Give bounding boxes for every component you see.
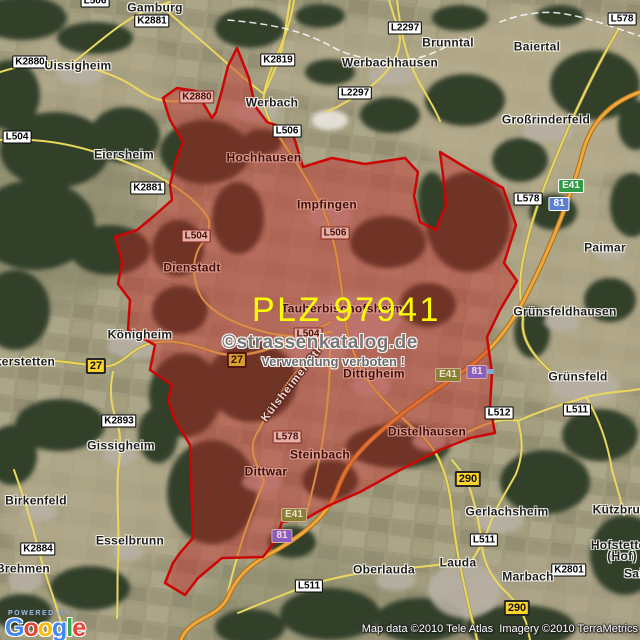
map-label-werbachhausen: Werbachhausen [342, 58, 438, 69]
map-label-e41-south: E41 [281, 508, 307, 522]
map-label-eiersheim: Eiersheim [94, 150, 154, 161]
map-label-oberlauda: Oberlauda [353, 565, 415, 576]
map-label-l2297-north: L2297 [388, 22, 422, 35]
map-label-weikerstetten: Weikerstetten [0, 357, 55, 368]
map-label-hofstetten: Hofstetten (Hof) [591, 540, 640, 562]
map-label-k2880-west: K2880 [12, 56, 47, 69]
map-label-k2880-border: K2880 [179, 91, 214, 104]
map-label-l511-oberlauda: L511 [295, 580, 323, 593]
map-label-dittigheim: Dittigheim [343, 369, 405, 380]
map-label-a81-mid: 81 [466, 365, 487, 379]
map-label-werbach: Werbach [246, 98, 299, 109]
map-label-a81-south: 81 [271, 529, 292, 543]
map-label-gissigheim: Gissigheim [87, 441, 155, 452]
google-letter: G [5, 614, 23, 640]
google-letter: o [38, 614, 52, 640]
map-label-l506-impfingen: L506 [321, 227, 350, 240]
map-label-hochhausen: Hochhausen [226, 153, 301, 164]
google-logo[interactable]: POWERED BY Google [5, 610, 85, 639]
map-label-birkenfeld: Birkenfeld [5, 496, 67, 507]
map-label-l506-werbach: L506 [273, 125, 302, 138]
google-letter: o [23, 614, 37, 640]
map-label-k2884: K2884 [20, 543, 55, 556]
map-label-k2893: K2893 [101, 415, 136, 428]
map-label-l504-west: L504 [3, 131, 32, 144]
map-label-l511-gerlachsheim: L511 [470, 534, 498, 547]
map-label-paimar: Paimar [584, 243, 626, 254]
map-label-esselbrunn: Esselbrunn [96, 536, 164, 547]
map-label-steinbach: Steinbach [290, 450, 350, 461]
google-letter: g [52, 614, 66, 640]
map-label-gamburg: Gamburg [127, 3, 182, 14]
google-letter: e [72, 614, 85, 640]
map-label-e41-north: E41 [558, 179, 584, 193]
map-label-k2881-top: K2881 [134, 15, 169, 28]
map-label-gerlachsheim: Gerlachsheim [466, 507, 549, 518]
map-label-k2819: K2819 [260, 54, 295, 67]
map-label-l578-topright: L578 [608, 13, 637, 26]
watermark-warning: Verwendung verboten ! [235, 354, 431, 369]
map-attribution: Map data ©2010 Tele Atlas Imagery ©2010 … [362, 623, 638, 635]
google-wordmark: Google [5, 617, 85, 639]
map-label-l578-steinbach: L578 [273, 431, 302, 444]
map-label-a81-north: 81 [548, 197, 569, 211]
map-label-koenigheim: Königheim [108, 330, 173, 341]
map-label-grossrinderfeld: Großrinderfeld [502, 115, 590, 126]
map-label-l506-top: L506 [81, 0, 110, 8]
map-label-impfingen: Impfingen [297, 200, 357, 211]
map-label-b290-south: 290 [504, 600, 530, 616]
map-label-l511-gruensfeld: L511 [563, 404, 591, 417]
map-label-b27-west: 27 [86, 358, 106, 374]
map-label-k2801: K2801 [551, 564, 586, 577]
map-label-sailtheim: Sailtheim [624, 569, 640, 580]
watermark-brand: ©strassenkatalog.de [222, 332, 418, 354]
map-label-baiertal: Baiertal [514, 42, 560, 53]
map-label-distelhausen: Distelhausen [388, 427, 466, 438]
map-label-dienstadt: Dienstadt [163, 263, 220, 274]
map-label-l578-right: L578 [514, 193, 543, 206]
map-viewport[interactable]: GamburgL506K2881K2880UissigheimK2819L229… [0, 0, 640, 640]
map-label-k2881-mid: K2881 [130, 182, 165, 195]
map-label-brunntal: Brunntal [422, 38, 474, 49]
map-label-l504-region: L504 [182, 230, 211, 243]
map-label-lauda: Lauda [440, 558, 477, 569]
map-label-gruensfeld: Grünsfeld [548, 372, 607, 383]
map-label-gruensfeldhausen: Grünsfeldhausen [513, 307, 616, 318]
map-label-dittwar: Dittwar [245, 467, 288, 478]
map-label-l512: L512 [485, 407, 514, 420]
plz-code-overlay: PLZ 97941 [252, 291, 441, 330]
map-label-kuetzbrunn: Kützbrunn [593, 505, 640, 516]
map-label-l2297-south: L2297 [338, 87, 372, 100]
map-label-brehmen: Brehmen [0, 564, 50, 575]
map-label-e41-mid: E41 [435, 368, 461, 382]
watermark: ©strassenkatalog.de Verwendung verboten … [222, 332, 418, 369]
map-label-b290-north: 290 [455, 471, 481, 487]
map-label-marbach: Marbach [502, 572, 553, 583]
map-label-uissigheim: Uissigheim [44, 61, 111, 72]
